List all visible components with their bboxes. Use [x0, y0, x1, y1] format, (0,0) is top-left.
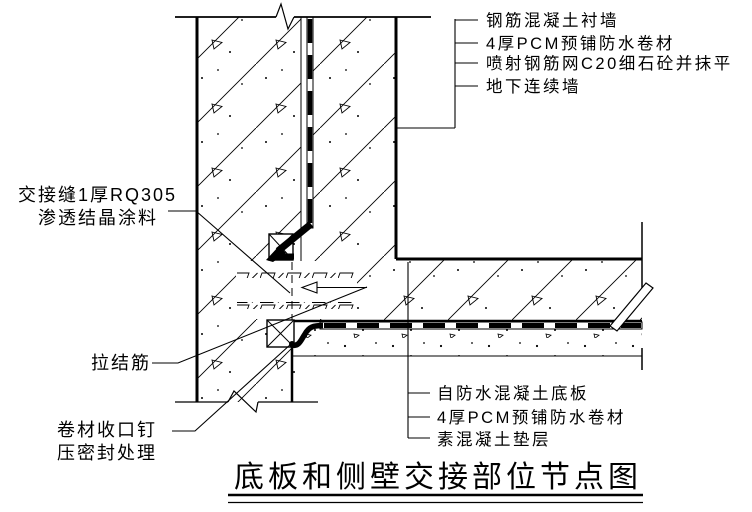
joint-pattern-row-lower — [237, 302, 355, 309]
callout-cushion: 素混凝土垫层 — [437, 430, 551, 449]
construction-detail-drawing: 钢筋混凝土衬墙 4厚PCM预铺防水卷材 喷射钢筋网C20细石砼并抹平 地下连续墙… — [0, 0, 752, 512]
callout-lining-wall: 钢筋混凝土衬墙 — [486, 11, 619, 30]
callout-shotcrete: 喷射钢筋网C20细石砼并抹平 — [486, 54, 733, 73]
joint-pattern-row-upper — [237, 271, 355, 278]
callout-seal-line2: 压密封处理 — [57, 443, 157, 463]
joint-zone — [236, 261, 357, 319]
callout-pcm-membrane-wall: 4厚PCM预铺防水卷材 — [486, 34, 675, 53]
cushion-layer — [293, 329, 642, 356]
callout-pcm-membrane-slab: 4厚PCM预铺防水卷材 — [437, 408, 626, 427]
drawing-title: 底板和侧壁交接部位节点图 — [234, 461, 642, 494]
callout-joint-seam-line2: 渗透结晶涂料 — [38, 208, 158, 228]
detail-drawing-canvas: 钢筋混凝土衬墙 4厚PCM预铺防水卷材 喷射钢筋网C20细石砼并抹平 地下连续墙… — [0, 0, 752, 512]
callout-slab: 自防水混凝土底板 — [437, 384, 589, 403]
callout-diaphragm-wall: 地下连续墙 — [486, 77, 581, 96]
lining-wall-hatch — [313, 17, 396, 259]
callout-joint-seam-line1: 交接缝1厚RQ305 — [18, 185, 177, 205]
callout-seal-line1: 卷材收口钉 — [57, 420, 157, 440]
callout-tie-bar: 拉结筋 — [91, 353, 151, 373]
